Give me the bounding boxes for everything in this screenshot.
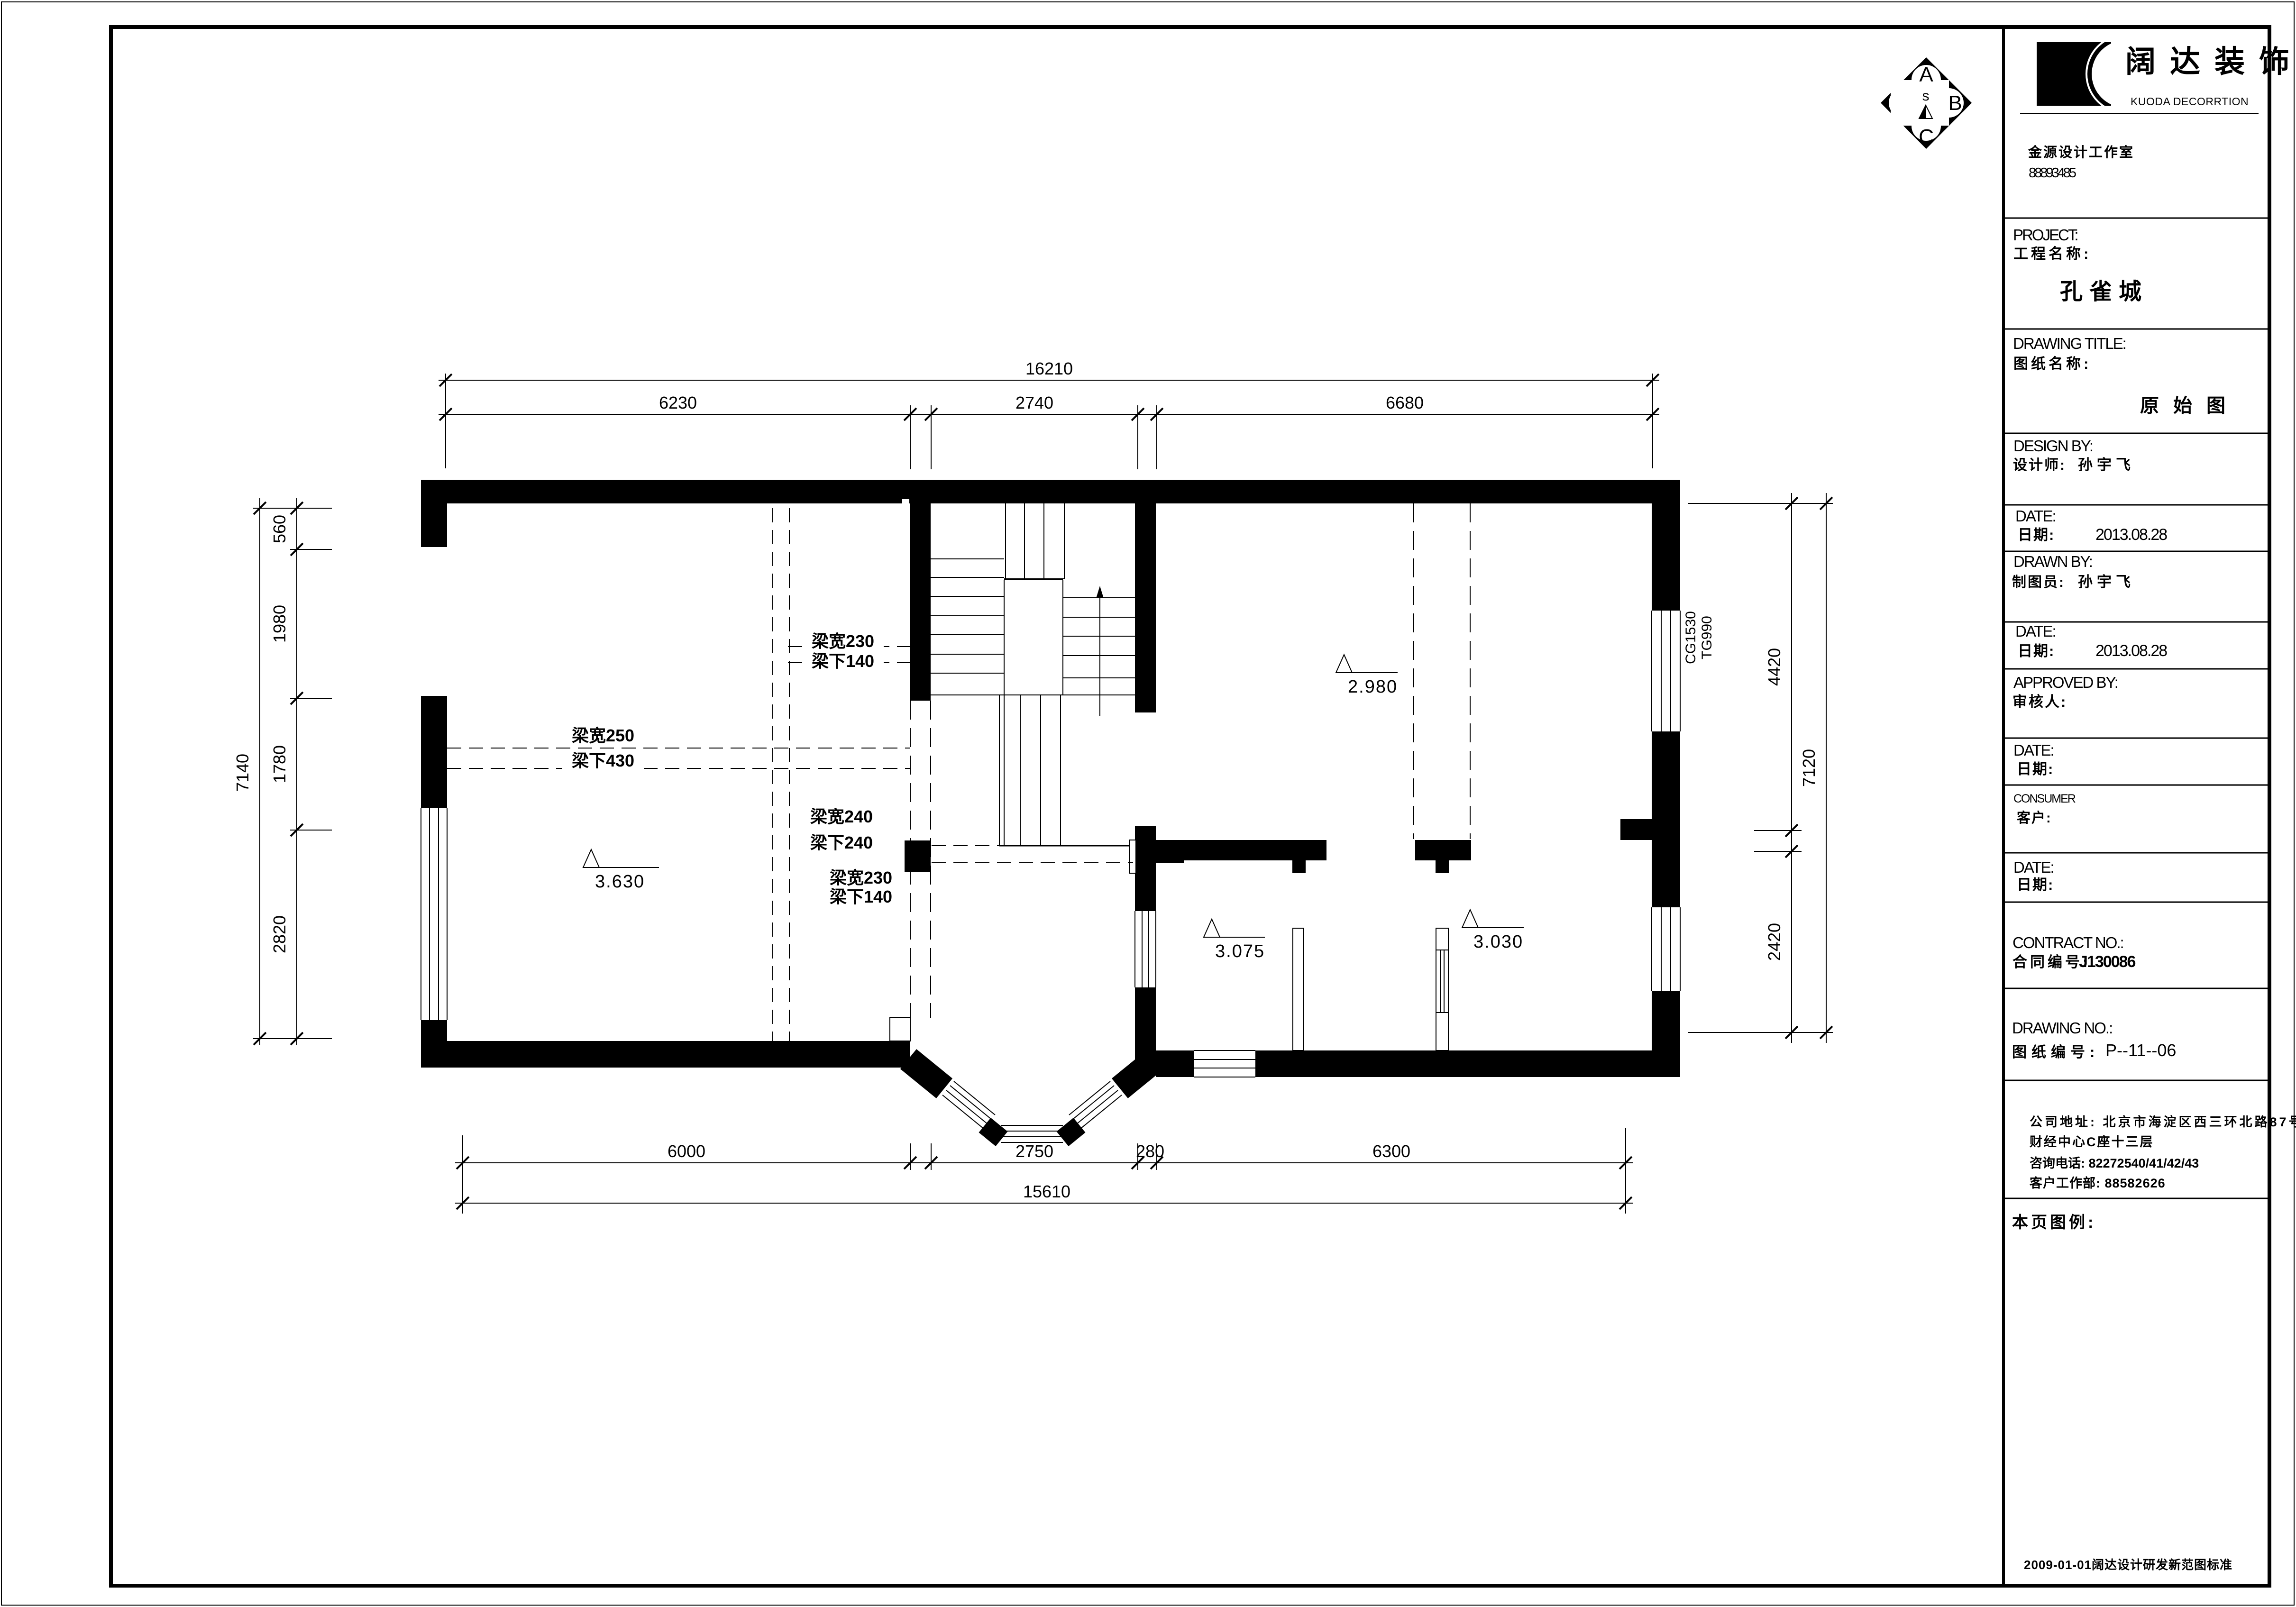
svg-text:7120: 7120 <box>1799 749 1819 787</box>
svg-text:客户工作部: 88582626: 客户工作部: 88582626 <box>2030 1176 2166 1190</box>
svg-text:2.980: 2.980 <box>1348 677 1398 697</box>
svg-text:280: 280 <box>1136 1141 1164 1161</box>
svg-text:3.075: 3.075 <box>1215 941 1265 961</box>
svg-text:梁宽230: 梁宽230 <box>812 631 874 651</box>
svg-text:3.030: 3.030 <box>1473 932 1523 952</box>
svg-text:CONSUMER: CONSUMER <box>2013 792 2076 805</box>
svg-text:日期:: 日期: <box>2017 761 2054 777</box>
svg-text:图纸编号:: 图纸编号: <box>2012 1044 2099 1060</box>
svg-text:DATE:: DATE: <box>2015 507 2056 525</box>
svg-text:DATE:: DATE: <box>2013 858 2054 876</box>
svg-text:制图员:: 制图员: <box>2012 575 2065 590</box>
svg-text:3.630: 3.630 <box>595 872 645 892</box>
svg-text:2009-01-01阔达设计研发新范图标准: 2009-01-01阔达设计研发新范图标准 <box>2024 1558 2232 1572</box>
svg-text:J130086: J130086 <box>2079 953 2135 971</box>
svg-text:DRAWN BY:: DRAWN BY: <box>2013 553 2092 570</box>
svg-text:6000: 6000 <box>668 1141 705 1161</box>
svg-text:C: C <box>1919 125 1934 148</box>
svg-text:P--11--06: P--11--06 <box>2105 1041 2176 1060</box>
svg-text:DATE:: DATE: <box>2015 622 2056 640</box>
svg-text:工程名称:: 工程名称: <box>2013 246 2091 262</box>
svg-text:公司地址: 北京市海淀区西三环北路87号国际: 公司地址: 北京市海淀区西三环北路87号国际 <box>2030 1114 2296 1129</box>
svg-text:DATE:: DATE: <box>2013 741 2054 759</box>
svg-text:s: s <box>1922 88 1930 104</box>
svg-text:DRAWING NO.:: DRAWING NO.: <box>2012 1019 2112 1037</box>
svg-text:B: B <box>1948 91 1962 115</box>
svg-text:日期:: 日期: <box>2017 877 2054 893</box>
svg-text:A: A <box>1919 63 1933 86</box>
svg-text:APPROVED BY:: APPROVED BY: <box>2013 674 2118 691</box>
svg-text:金源设计工作室: 金源设计工作室 <box>2028 144 2134 160</box>
svg-text:PROJECT:: PROJECT: <box>2013 226 2077 244</box>
svg-text:图纸名称:: 图纸名称: <box>2013 356 2091 372</box>
svg-text:2740: 2740 <box>1015 393 1053 412</box>
svg-text:2750: 2750 <box>1015 1141 1053 1161</box>
svg-text:88893485: 88893485 <box>2029 165 2076 181</box>
svg-text:客户:: 客户: <box>2017 810 2052 826</box>
svg-text:阔达装饰: 阔达装饰 <box>2125 45 2296 79</box>
svg-text:梁下140: 梁下140 <box>812 651 874 671</box>
svg-text:16210: 16210 <box>1025 359 1073 378</box>
svg-text:CONTRACT NO.:: CONTRACT NO.: <box>2012 934 2123 951</box>
svg-text:日期:: 日期: <box>2018 643 2055 659</box>
svg-text:DRAWING TITLE:: DRAWING TITLE: <box>2013 335 2126 352</box>
svg-text:原始图: 原始图 <box>2140 395 2240 416</box>
svg-text:本页图例:: 本页图例: <box>2012 1214 2096 1232</box>
svg-text:梁宽250: 梁宽250 <box>572 726 634 745</box>
svg-text:梁宽230: 梁宽230 <box>830 868 892 887</box>
svg-text:15610: 15610 <box>1023 1182 1070 1201</box>
svg-text:孔雀城: 孔雀城 <box>2060 279 2148 304</box>
svg-text:6680: 6680 <box>1386 393 1424 412</box>
svg-text:设计师:: 设计师: <box>2013 457 2066 473</box>
svg-text:6300: 6300 <box>1372 1141 1410 1161</box>
svg-text:梁宽240: 梁宽240 <box>810 807 873 826</box>
svg-text:7140: 7140 <box>233 754 252 792</box>
svg-text:孙宇飞: 孙宇飞 <box>2078 457 2135 473</box>
svg-text:560: 560 <box>270 515 289 543</box>
svg-text:1980: 1980 <box>270 605 289 643</box>
svg-text:梁下140: 梁下140 <box>830 887 892 906</box>
svg-text:2013.08.28: 2013.08.28 <box>2095 526 2167 544</box>
svg-text:4420: 4420 <box>1765 648 1784 686</box>
svg-text:KUODA DECORRTION: KUODA DECORRTION <box>2131 95 2249 108</box>
svg-text:TG990: TG990 <box>1699 616 1715 659</box>
svg-text:2013.08.28: 2013.08.28 <box>2095 642 2167 660</box>
svg-text:孙宇飞: 孙宇飞 <box>2078 574 2135 590</box>
svg-text:DESIGN BY:: DESIGN BY: <box>2013 437 2093 455</box>
svg-text:日期:: 日期: <box>2018 527 2055 543</box>
svg-text:梁下240: 梁下240 <box>810 833 873 852</box>
svg-text:6230: 6230 <box>659 393 697 412</box>
svg-text:2820: 2820 <box>270 915 289 953</box>
svg-text:财经中心C座十三层: 财经中心C座十三层 <box>2030 1134 2154 1149</box>
svg-text:1780: 1780 <box>270 745 289 783</box>
svg-text:CG1530: CG1530 <box>1683 611 1699 664</box>
svg-text:审核人:: 审核人: <box>2012 694 2067 710</box>
svg-text:2420: 2420 <box>1765 923 1784 961</box>
svg-text:咨询电话: 82272540/41/42/43: 咨询电话: 82272540/41/42/43 <box>2030 1156 2199 1170</box>
svg-text:梁下430: 梁下430 <box>572 751 634 770</box>
